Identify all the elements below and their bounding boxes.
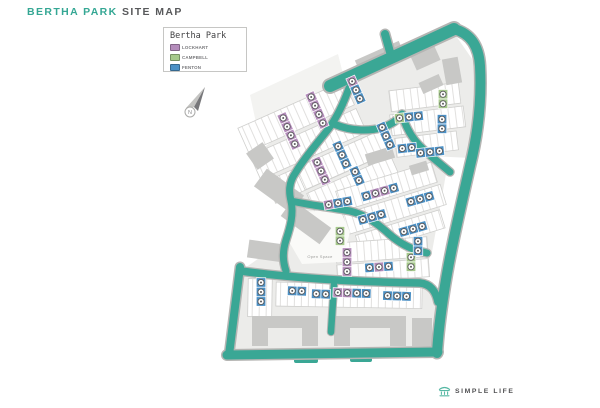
house-marker-group <box>342 248 352 277</box>
house-marker-group <box>413 237 423 256</box>
fenton-color-swatch <box>170 64 180 71</box>
house-marker-group <box>383 291 412 301</box>
house-marker-group <box>335 227 345 246</box>
open-space-label: Open Space <box>298 254 342 259</box>
north-arrow-icon: N <box>181 86 209 120</box>
legend-item-campbell: CAMPBELL <box>170 54 207 61</box>
legend-label: LOCKHART <box>182 45 208 50</box>
brand-logo: SIMPLE LIFE <box>438 385 515 397</box>
campbell-color-swatch <box>170 54 180 61</box>
legend-item-fenton: FENTON <box>170 64 207 71</box>
house-marker-group <box>438 90 448 109</box>
legend-title: Bertha Park <box>170 31 241 41</box>
brand-text: SIMPLE LIFE <box>455 388 515 395</box>
house-marker-group <box>311 289 330 299</box>
pavilion-icon <box>438 385 451 397</box>
house-marker-group <box>256 278 266 307</box>
legend-item-lockhart: LOCKHART <box>170 44 207 51</box>
house-marker-group <box>364 261 393 272</box>
house-marker-group <box>333 288 371 299</box>
lockhart-color-swatch <box>170 44 180 51</box>
site-map-canvas <box>0 0 600 408</box>
legend-label: FENTON <box>182 65 201 70</box>
map-legend: Bertha Park LOCKHART CAMPBELL FENTON <box>163 27 247 72</box>
house-marker-group <box>437 115 447 134</box>
legend-label: CAMPBELL <box>182 55 208 60</box>
site-map-page: BERTHA PARK SITE MAP <box>0 0 600 408</box>
house-marker-group <box>397 142 417 153</box>
north-label: N <box>188 110 192 116</box>
house-marker-group <box>287 286 306 296</box>
